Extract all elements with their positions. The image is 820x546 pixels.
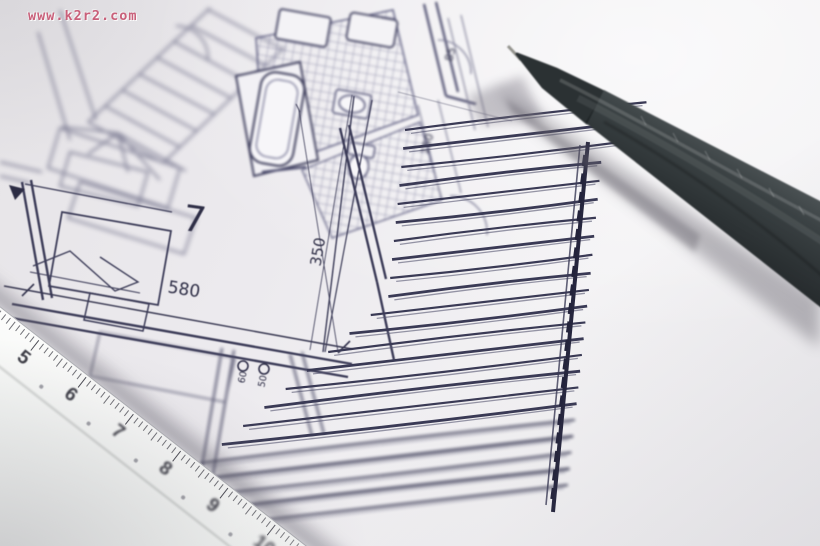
photo-of-floor-plan: 85 150 7 580 — [0, 0, 820, 546]
fineliner-pen — [0, 0, 820, 546]
watermark: www.k2r2.com — [28, 8, 138, 24]
